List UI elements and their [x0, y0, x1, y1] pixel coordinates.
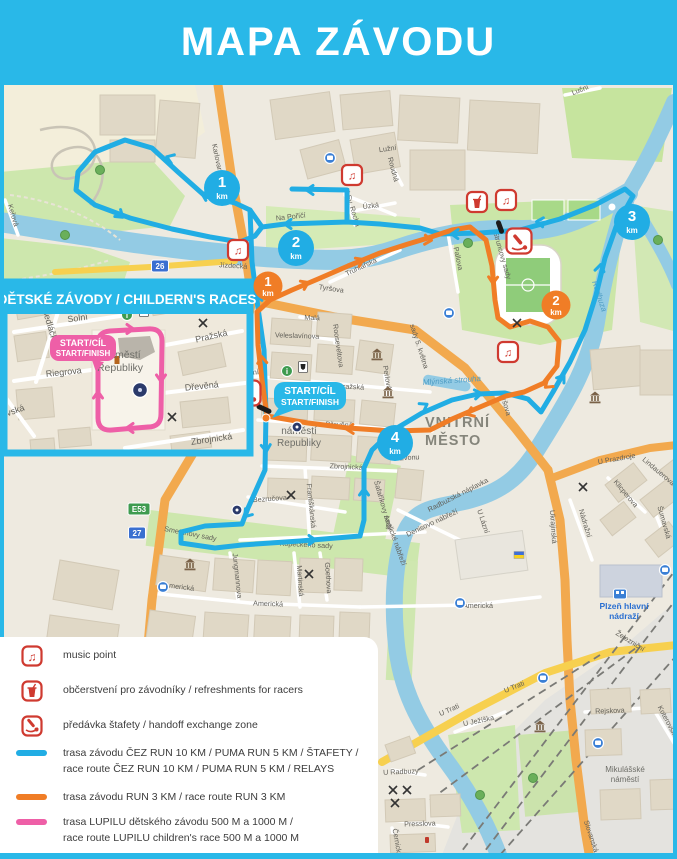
svg-text:2: 2 [292, 234, 300, 251]
music-icon: ♫ [496, 190, 516, 210]
bus-icon [593, 738, 604, 749]
route-10k-swatch [16, 750, 47, 756]
bus-icon [444, 308, 455, 319]
monument-lg-icon [133, 383, 148, 398]
route-3k-swatch [16, 794, 47, 800]
music-icon: ♫ [342, 165, 362, 185]
race-map-page: MAPA ZÁVODU [0, 0, 677, 859]
childrens-races-inset: i SolníPražskáSedláčkovaRiegrovaDřevěnáZ… [0, 282, 256, 453]
street-label: Veleslavínova [275, 330, 320, 341]
tree-icon [529, 774, 538, 783]
start-finish-line2: START/FINISH [281, 397, 339, 407]
svg-text:♫: ♫ [502, 196, 510, 208]
turnaround-dot [609, 204, 616, 211]
inset-start-line1: START/CÍL [60, 338, 107, 348]
street-label: Úzká [362, 200, 379, 211]
tree-icon [96, 166, 105, 175]
monument-icon [292, 422, 302, 432]
svg-text:km: km [290, 252, 302, 261]
svg-text:26: 26 [156, 262, 165, 271]
hydrant-icon [425, 837, 429, 843]
museum-flag-icon [299, 362, 308, 373]
handoff-icon [507, 229, 532, 254]
bus-icon [660, 565, 671, 576]
km-badge-cyan-4: 4km [377, 425, 413, 461]
street-label: Americká [253, 598, 283, 608]
street-label: Rejskova [595, 705, 625, 715]
train-icon [614, 589, 627, 599]
bus-icon [538, 673, 549, 684]
tree-icon [654, 236, 663, 245]
legend-label: občerstvení pro závodníky / refreshments… [63, 684, 303, 696]
tree-icon [61, 231, 70, 240]
svg-text:♫: ♫ [234, 246, 242, 258]
svg-text:♫: ♫ [504, 348, 512, 360]
inset-start-line2: START/FINISH [56, 349, 111, 358]
km-badge-orange-1: 1km [254, 272, 283, 301]
refreshment-icon [467, 192, 487, 212]
svg-text:3: 3 [628, 208, 636, 225]
legend-label: race route ČEZ RUN 10 KM / PUMA RUN 5 KM… [63, 763, 334, 775]
music-icon: ♫ [498, 342, 518, 362]
street-label: Americká [463, 601, 493, 610]
legend-label: trasa LUPILU dětského závodu 500 M a 100… [63, 816, 293, 828]
street-label: U Radbuzy [383, 766, 419, 777]
svg-text:1: 1 [264, 274, 271, 289]
street-label: Zbrojnická [329, 461, 363, 472]
street-label: Presslova [404, 818, 436, 828]
legend-label: trasa závodu RUN 3 KM / race route RUN 3… [63, 791, 285, 803]
svg-text:km: km [626, 226, 638, 235]
svg-text:27: 27 [133, 529, 142, 538]
inset-square-label2: Republiky [97, 362, 144, 374]
svg-text:km: km [216, 192, 228, 201]
legend-panel: ♫ music point občerstvení pro závodníky … [0, 637, 378, 853]
tree-icon [476, 791, 485, 800]
music-icon: ♫ [228, 240, 248, 260]
bus-icon [325, 153, 336, 164]
legend-label: race route LUPILU children's race 500 M … [63, 832, 299, 844]
km-badge-orange-2: 2km [542, 291, 571, 320]
start-finish-line1: START/CÍL [284, 384, 335, 397]
svg-text:km: km [550, 308, 562, 317]
bus-icon [455, 598, 466, 609]
km-badge-cyan-3: 3km [614, 204, 650, 240]
monument-icon [232, 505, 242, 515]
flag-ua-icon [514, 552, 524, 559]
legend-label: předávka štafety / handoff exchange zone [63, 719, 258, 731]
svg-text:♫: ♫ [28, 650, 37, 664]
svg-text:i: i [286, 367, 288, 376]
bottom-frame [0, 853, 677, 859]
road-badge: E53 [128, 503, 150, 515]
start-point-dot [262, 414, 270, 422]
bus-icon [158, 582, 169, 593]
road-badge: 27 [129, 527, 146, 539]
street-label: Malá [304, 313, 320, 323]
street-label: Jízdecká [219, 260, 248, 270]
svg-text:2: 2 [552, 293, 559, 308]
legend-label: trasa závodu ČEZ RUN 10 KM / PUMA RUN 5 … [63, 747, 358, 759]
svg-text:km: km [389, 447, 401, 456]
info-icon: i [282, 366, 293, 377]
km-badge-cyan-2: 2km [278, 230, 314, 266]
svg-text:E53: E53 [132, 505, 147, 514]
legend-label: music point [63, 649, 116, 661]
svg-text:km: km [262, 289, 274, 298]
km-badge-cyan-1: 1km [204, 170, 240, 206]
svg-text:4: 4 [391, 429, 400, 446]
route-children-swatch [16, 819, 47, 825]
svg-text:1: 1 [218, 174, 226, 191]
road-badge: 26 [152, 260, 169, 272]
inset-title: DĚTSKÉ ZÁVODY / CHILDERN'S RACES [0, 292, 256, 307]
svg-text:♫: ♫ [348, 171, 356, 183]
tree-icon [464, 239, 473, 248]
